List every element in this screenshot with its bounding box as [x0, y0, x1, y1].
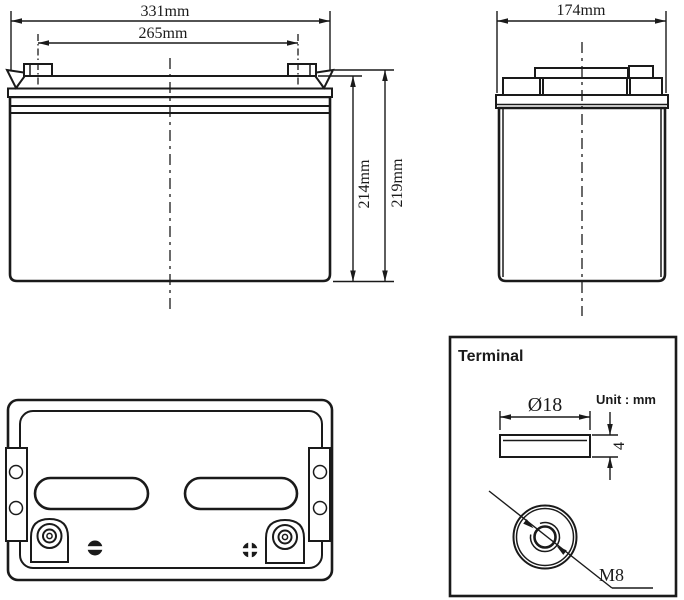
side-lid-tab	[629, 66, 653, 78]
dim-terminal-diameter-label: Ø18	[528, 394, 562, 416]
dim-overall-height-label: 219mm	[389, 158, 406, 207]
top-view	[6, 400, 332, 580]
top-terminal-positive	[266, 520, 304, 563]
dim-terminal-pitch: 265mm	[38, 25, 298, 46]
side-lid-block-middle	[543, 78, 627, 95]
terminal-detail: Terminal Unit : mm Ø18 4	[450, 337, 676, 596]
top-bracket-left-hole-2	[10, 502, 23, 515]
side-lid-block-right	[630, 78, 662, 95]
top-bracket-left-hole-1	[10, 466, 23, 479]
terminal-detail-title: Terminal	[458, 348, 524, 365]
side-lid-block-left	[503, 78, 540, 95]
top-bracket-right-hole-2	[314, 502, 327, 515]
top-handle-slot-left	[35, 478, 148, 509]
dim-terminal-pitch-label: 265mm	[139, 25, 188, 42]
top-bracket-right-hole-1	[314, 466, 327, 479]
dim-body-height-label: 214mm	[356, 159, 373, 208]
drawing-svg: 331mm 265mm 214mm 219mm	[0, 0, 684, 600]
terminal-plan-view	[514, 506, 577, 569]
side-view: 174mm	[496, 2, 668, 316]
front-view: 331mm 265mm 214mm 219mm	[7, 3, 406, 312]
dim-terminal-thickness-label: 4	[611, 442, 628, 450]
top-bracket-right	[309, 448, 330, 541]
front-terminal-positive	[288, 64, 316, 76]
dim-overall-width-label: 331mm	[141, 3, 190, 20]
top-handle-slot-right	[185, 478, 297, 509]
top-terminal-negative	[31, 519, 68, 562]
negative-polarity-icon	[88, 541, 103, 556]
unit-note: Unit : mm	[596, 392, 656, 407]
terminal-disc-side	[500, 435, 590, 457]
top-bracket-left	[6, 448, 27, 541]
dim-overall-depth-label: 174mm	[557, 2, 606, 19]
battery-dimension-drawing: 331mm 265mm 214mm 219mm	[0, 0, 684, 600]
positive-polarity-icon	[243, 543, 258, 558]
thread-size-label: M8	[599, 565, 624, 585]
